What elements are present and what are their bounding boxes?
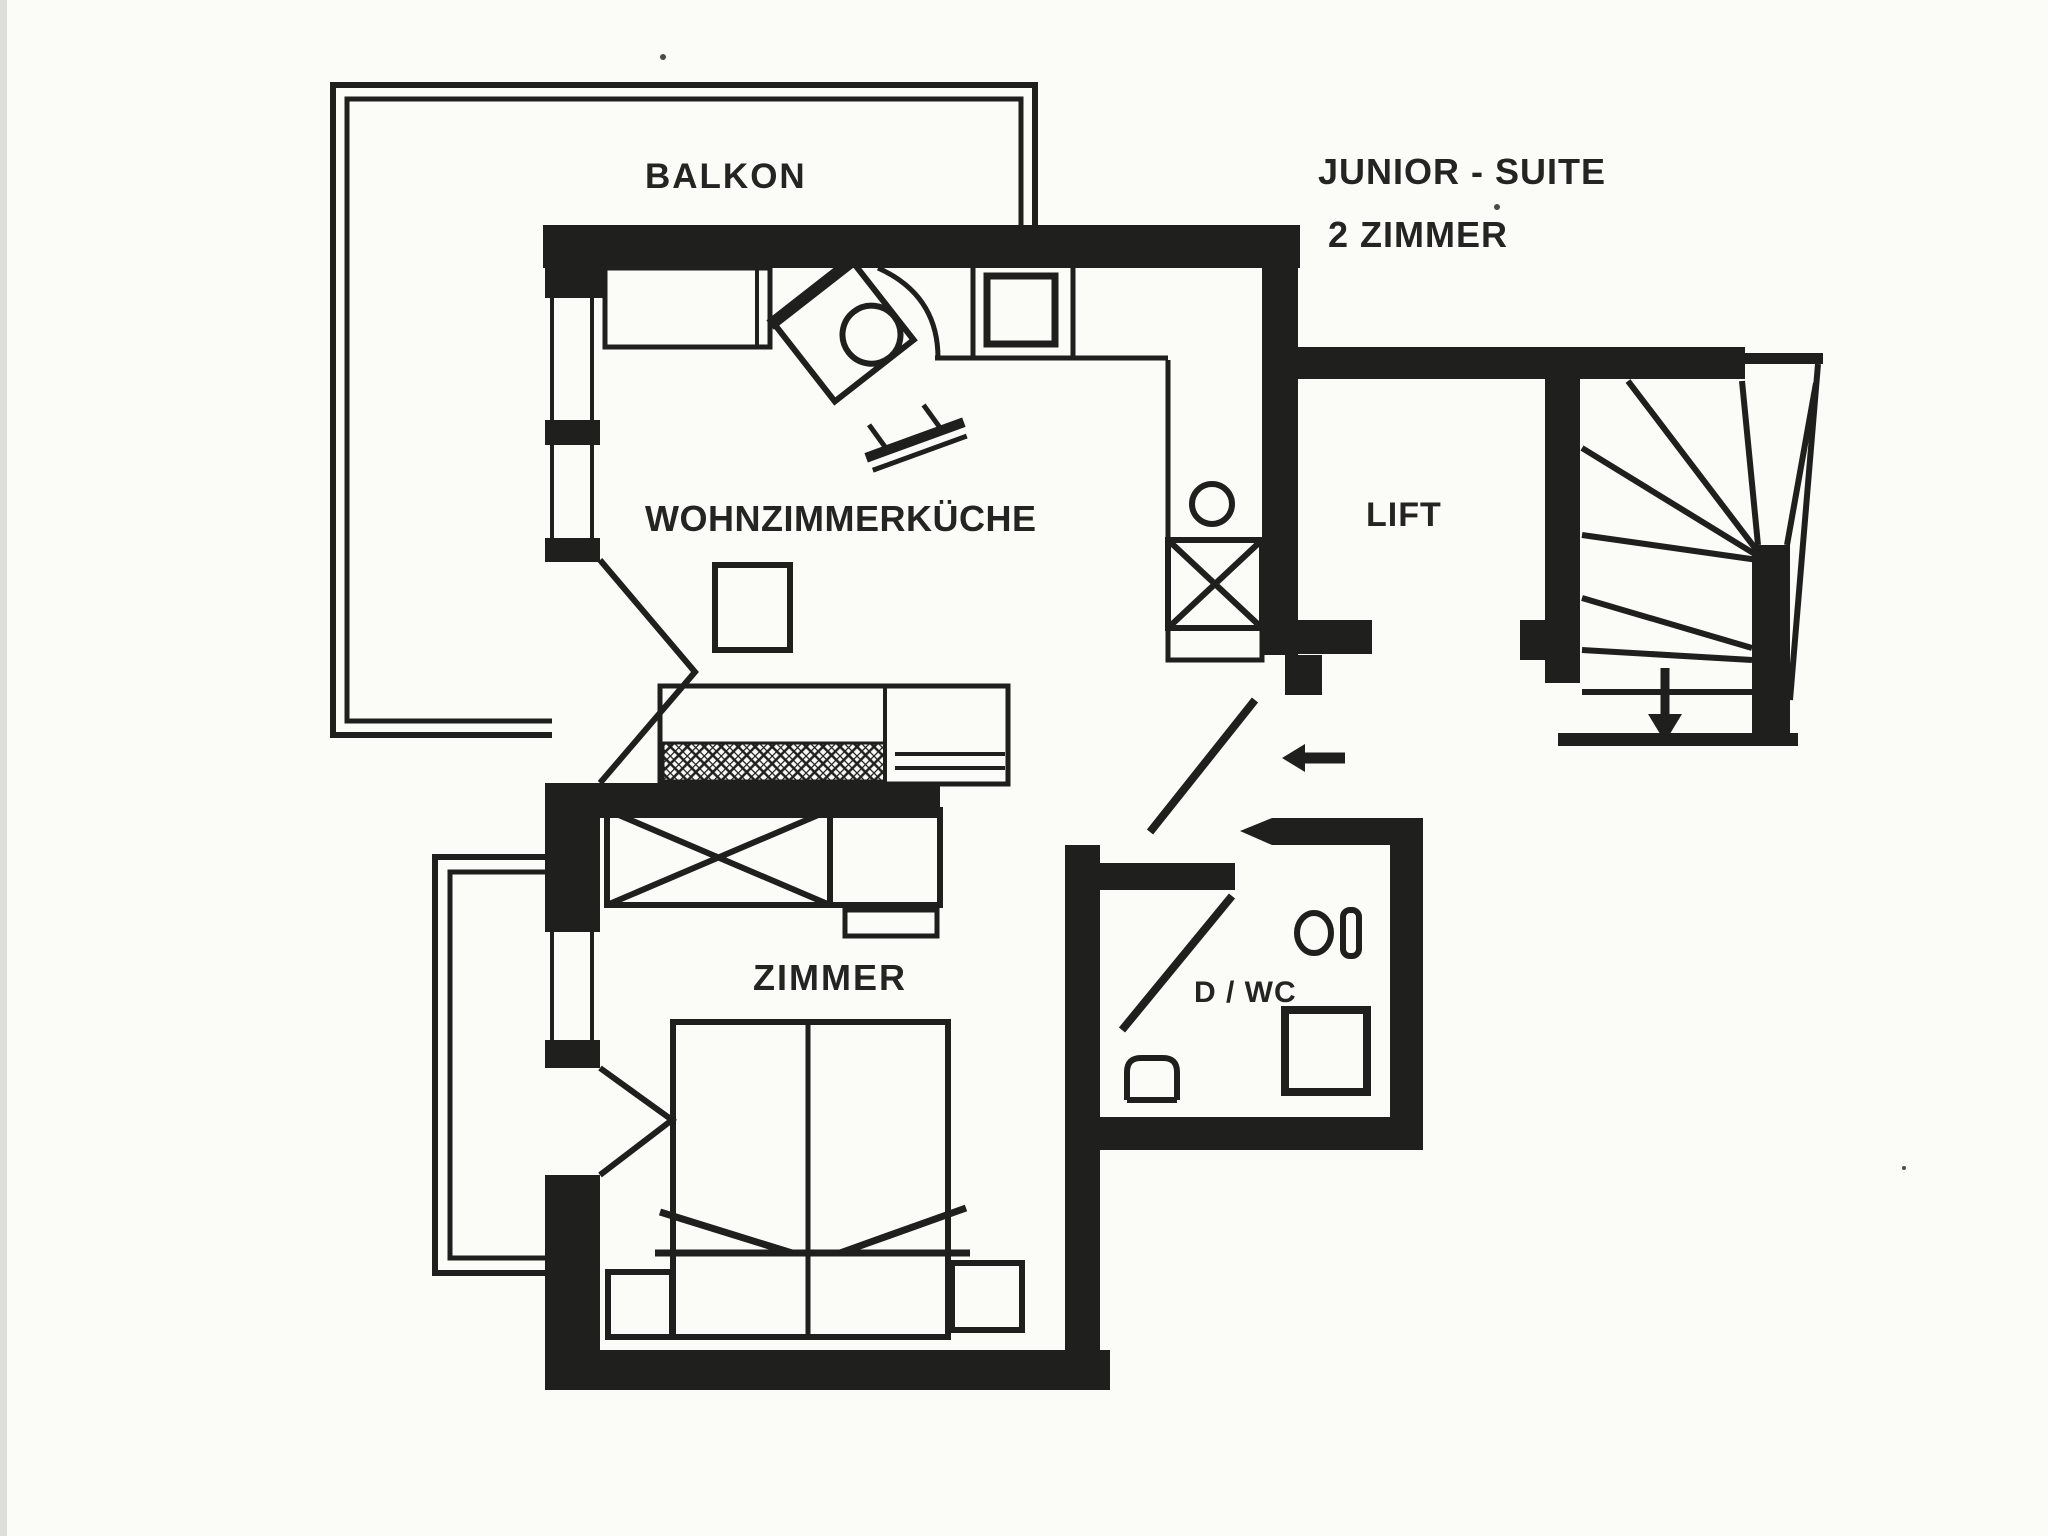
entry-arrow-icon bbox=[1282, 744, 1345, 772]
stair-newel bbox=[1752, 545, 1790, 740]
closet bbox=[830, 810, 940, 936]
entry-door bbox=[1150, 700, 1255, 832]
bench bbox=[845, 910, 937, 936]
nightstand-left bbox=[608, 1272, 672, 1337]
wardrobe bbox=[607, 810, 830, 905]
floor-plan-scan: BALKON JUNIOR - SUITE 2 ZIMMER WOHNZIMME… bbox=[0, 0, 2048, 1536]
service-shaft bbox=[1168, 360, 1262, 660]
shower bbox=[1285, 1010, 1367, 1092]
kitchen-sink bbox=[770, 259, 917, 404]
coffee-table bbox=[715, 565, 790, 650]
stairs-down-arrow-icon bbox=[1648, 668, 1682, 742]
kitchen-stove bbox=[987, 276, 1055, 344]
washbasin bbox=[1127, 1058, 1177, 1100]
sofa bbox=[660, 686, 1008, 784]
floor-plan: BALKON JUNIOR - SUITE 2 ZIMMER WOHNZIMME… bbox=[0, 0, 2048, 1536]
label-bedroom: ZIMMER bbox=[753, 957, 907, 998]
shaft-circle-icon bbox=[1192, 484, 1232, 524]
label-lift: LIFT bbox=[1366, 496, 1442, 534]
label-suite-subtitle: 2 ZIMMER bbox=[1328, 214, 1508, 255]
balcony-door-swing-bedroom bbox=[600, 1068, 672, 1175]
label-suite-title: JUNIOR - SUITE bbox=[1318, 151, 1606, 192]
kitchen-chair bbox=[856, 394, 969, 471]
label-bathroom: D / WC bbox=[1194, 976, 1297, 1009]
label-living-kitchen: WOHNZIMMERKÜCHE bbox=[645, 498, 1036, 539]
bathroom-door bbox=[1122, 896, 1232, 1030]
double-bed bbox=[655, 1022, 970, 1337]
toilet bbox=[1297, 910, 1359, 956]
staircase bbox=[1558, 364, 1818, 746]
label-balcony: BALKON bbox=[645, 157, 807, 196]
nightstand-right bbox=[952, 1263, 1022, 1330]
